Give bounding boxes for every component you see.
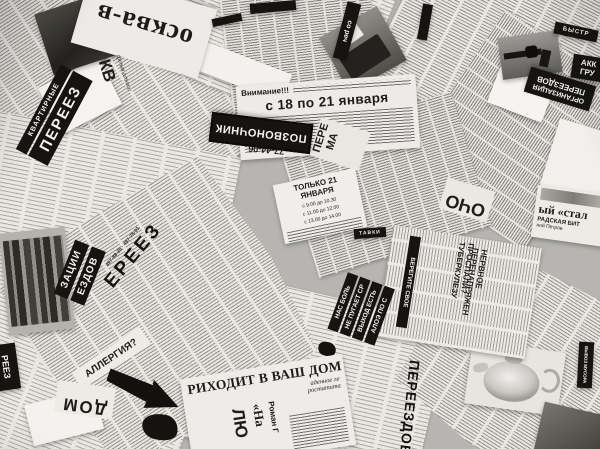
bystro-text: БЫСТР (562, 26, 590, 37)
phone-number: 77-44-06 (248, 143, 285, 156)
beregite-strip: БЕРЕГИТЕ СВОЕ (396, 236, 421, 329)
revolver-grip (539, 49, 551, 67)
stavki-text: ТАВКИ (359, 229, 381, 236)
revolver-cylinder (525, 45, 539, 59)
pozvonochnik-title: ПОЗВОНОЧНИК (215, 121, 308, 144)
vyvoz-text: ВЫВОЗ МУСОРА (582, 346, 589, 384)
akk-gru-label: АКК ГРУ (570, 54, 600, 83)
moskva-headline: осква-в (92, 0, 196, 55)
akk-line2: ГРУ (579, 67, 595, 78)
newspaper-collage-photo: осква-в со реч КВАРТИРНЫЕ ПЕРЕЕЗ КВ філь… (0, 0, 600, 449)
roman-vertical: Роман Г (266, 401, 280, 434)
vyvoz-label: ВЫВОЗ МУСОРА (577, 342, 594, 389)
beregite-text: БЕРЕГИТЕ СВОЕ (402, 257, 416, 308)
teapot-handle (537, 367, 561, 394)
stal-article-scrap: ый «стал РАДСКАЯ БИТ ной Петров (531, 185, 600, 247)
folded-article-scrap: БЕРЕГИТЕ СВОЕ ПРОСПАЛИ? ТУБЕРКУЛЕЗУ НЕРВ… (376, 225, 542, 359)
teapot-body (481, 358, 542, 405)
reez-text: РЕЕЗ (0, 355, 13, 380)
fine-print (289, 407, 350, 449)
pereezdov-text: ПЕРЕЕЗДОВ (397, 359, 423, 449)
sorech-label: со реч (341, 19, 354, 42)
lyu-vertical: ЛЮ (227, 407, 251, 439)
na-vertical: «На (249, 402, 268, 427)
